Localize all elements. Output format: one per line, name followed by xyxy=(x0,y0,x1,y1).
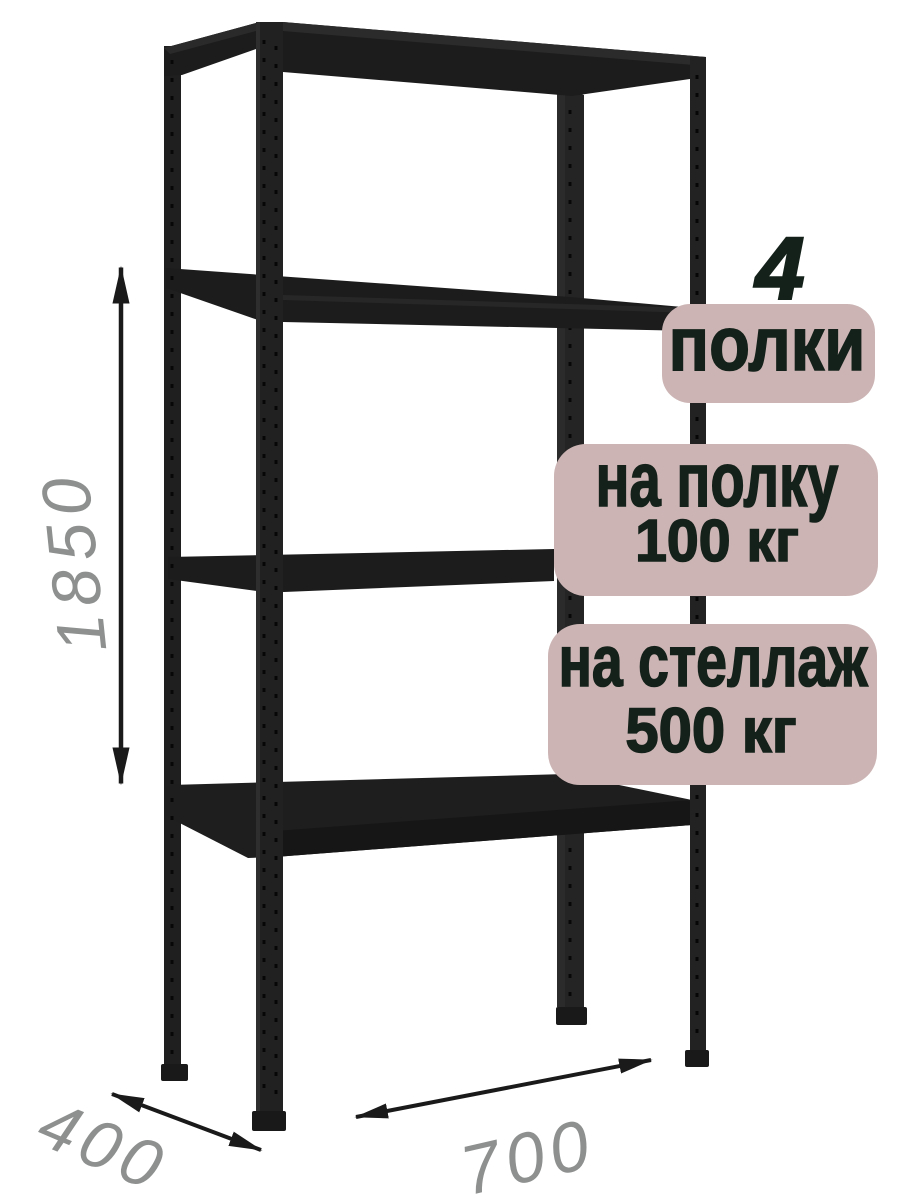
svg-text:на стеллаж: на стеллаж xyxy=(558,621,868,702)
svg-text:полки: полки xyxy=(669,302,866,387)
svg-text:500 кг: 500 кг xyxy=(625,696,796,767)
svg-text:100 кг: 100 кг xyxy=(635,508,799,574)
